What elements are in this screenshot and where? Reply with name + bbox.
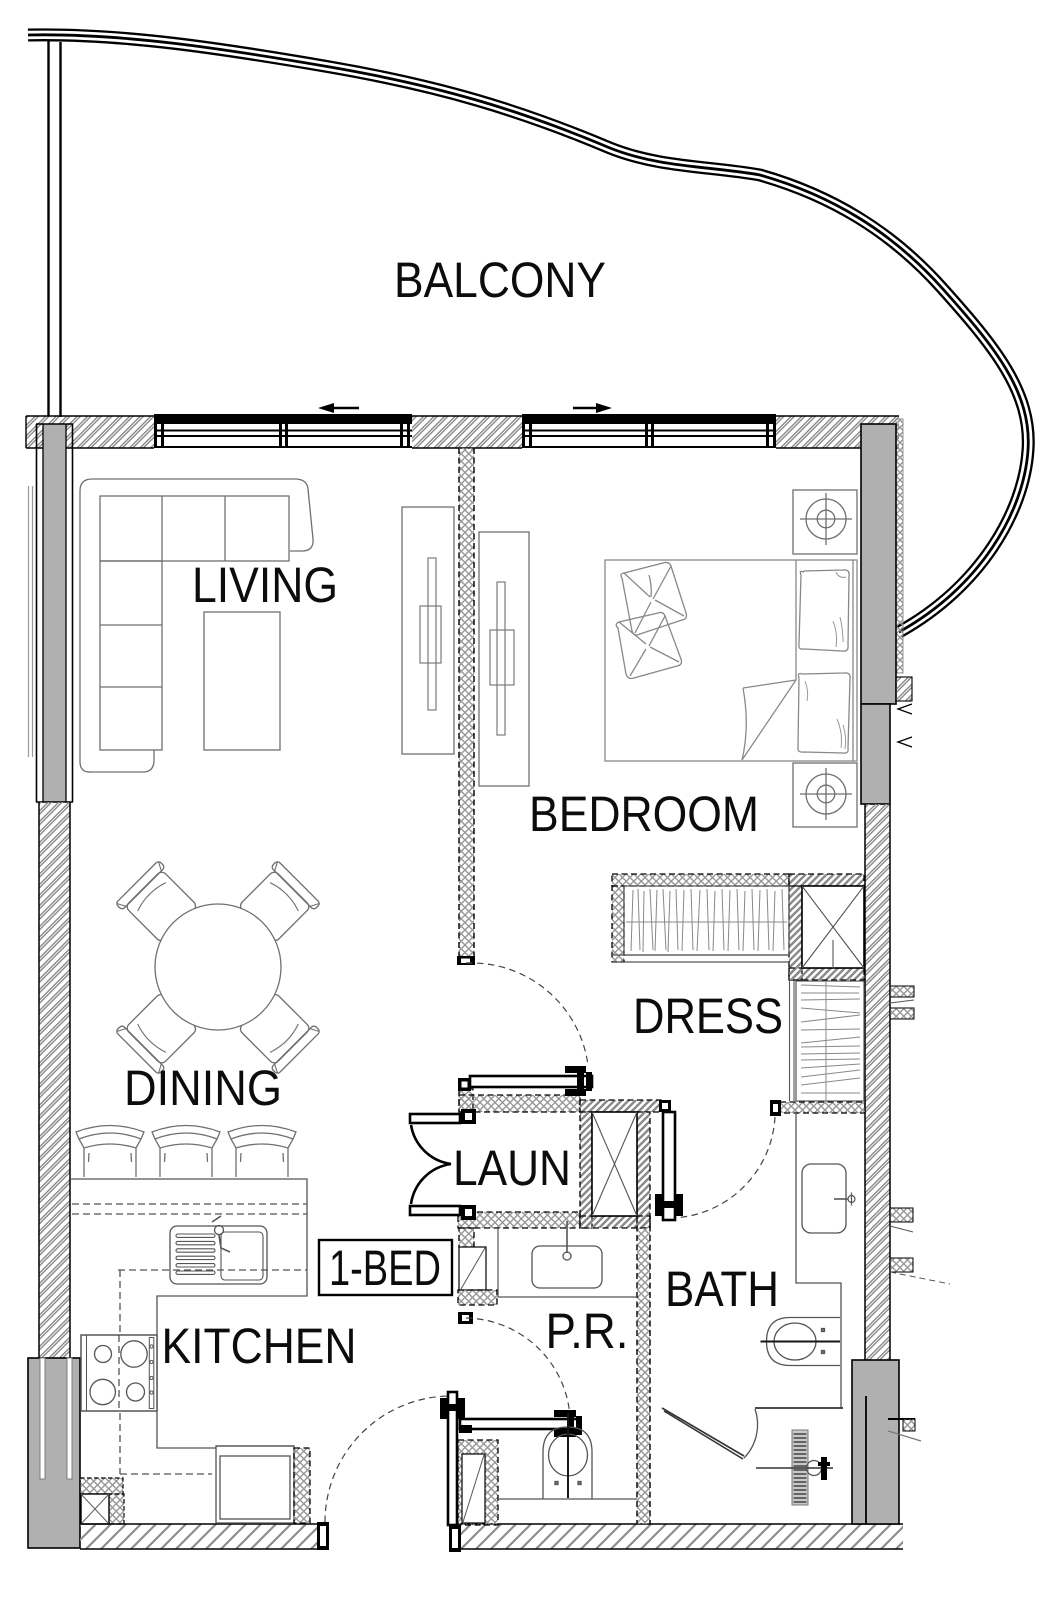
svg-text:LIVING: LIVING — [192, 557, 338, 613]
svg-text:DINING: DINING — [124, 1060, 282, 1116]
svg-text:KITCHEN: KITCHEN — [162, 1318, 357, 1374]
svg-text:BALCONY: BALCONY — [394, 252, 606, 308]
svg-text:LAUN: LAUN — [453, 1140, 571, 1196]
svg-text:BATH: BATH — [665, 1261, 779, 1317]
svg-text:1-BED: 1-BED — [329, 1240, 441, 1296]
svg-text:DRESS: DRESS — [633, 988, 783, 1044]
svg-text:BEDROOM: BEDROOM — [529, 786, 759, 842]
svg-text:P.R.: P.R. — [546, 1303, 629, 1359]
